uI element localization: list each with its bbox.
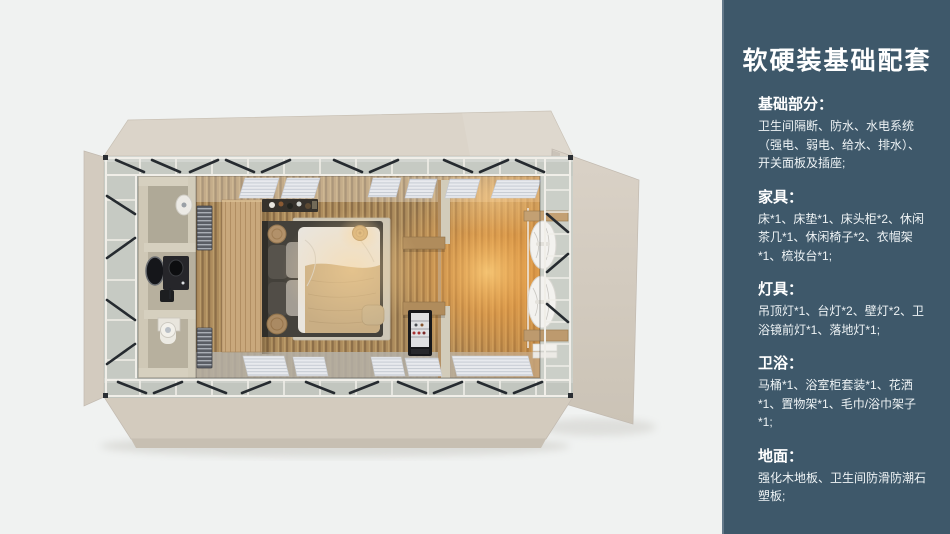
towel-radiator [197, 328, 212, 368]
info-panel: 软硬装基础配套 基础部分： 卫生间隔断、防水、水电系统（强电、弱电、给水、排水）… [722, 0, 950, 534]
curtain [530, 221, 556, 269]
section-heading: 基础部分： [758, 96, 930, 114]
section-body: 床*1、床垫*1、床头柜*2、休闲茶几*1、休闲椅子*2、衣帽架*1、梳妆台*1… [758, 210, 930, 266]
section-heading: 灯具： [758, 281, 930, 299]
section-flooring: 地面： 强化木地板、卫生间防滑防潮石塑板; [758, 448, 930, 506]
left-flap [84, 151, 104, 406]
mini-fridge [408, 310, 432, 356]
panel-title: 软硬装基础配套 [724, 46, 950, 76]
section-body: 卫生间隔断、防水、水电系统（强电、弱电、给水、排水）、开关面板及插座; [758, 117, 930, 173]
curtain [528, 276, 556, 328]
section-body: 马桶*1、浴室柜套装*1、花洒*1、置物架*1、毛巾/浴巾架子*1; [758, 376, 930, 432]
bottom-flap [104, 397, 573, 439]
slide: 软硬装基础配套 基础部分： 卫生间隔断、防水、水电系统（强电、弱电、给水、排水）… [0, 0, 950, 534]
section-lighting: 灯具： 吊顶灯*1、台灯*2、壁灯*2、卫浴镜前灯*1、落地灯*1; [758, 281, 930, 339]
section-heading: 卫浴： [758, 355, 930, 373]
section-basics: 基础部分： 卫生间隔断、防水、水电系统（强电、弱电、给水、排水）、开关面板及插座… [758, 96, 930, 173]
clothes-rack [262, 199, 318, 212]
bottom-flap-lip [131, 439, 546, 448]
section-body: 吊顶灯*1、台灯*2、壁灯*2、卫浴镜前灯*1、落地灯*1; [758, 302, 930, 339]
section-body: 强化木地板、卫生间防滑防潮石塑板; [758, 469, 930, 506]
interior [138, 160, 588, 378]
section-furniture: 家具： 床*1、床垫*1、床头柜*2、休闲茶几*1、休闲椅子*2、衣帽架*1、梳… [758, 189, 930, 266]
section-heading: 地面： [758, 448, 930, 466]
sink-bowl [169, 260, 183, 276]
floor-plan-render [0, 0, 722, 534]
towel-radiator [197, 206, 212, 250]
bath-divider-wall [144, 243, 196, 252]
panel-sections: 基础部分： 卫生间隔断、防水、水电系统（强电、弱电、给水、排水）、开关面板及插座… [758, 96, 930, 506]
section-heading: 家具： [758, 189, 930, 207]
section-sanitary: 卫浴： 马桶*1、浴室柜套装*1、花洒*1、置物架*1、毛巾/浴巾架子*1; [758, 355, 930, 432]
vanity-mirror [146, 257, 164, 285]
bathroom [138, 176, 196, 378]
headboard [262, 221, 268, 337]
shower [148, 186, 192, 243]
